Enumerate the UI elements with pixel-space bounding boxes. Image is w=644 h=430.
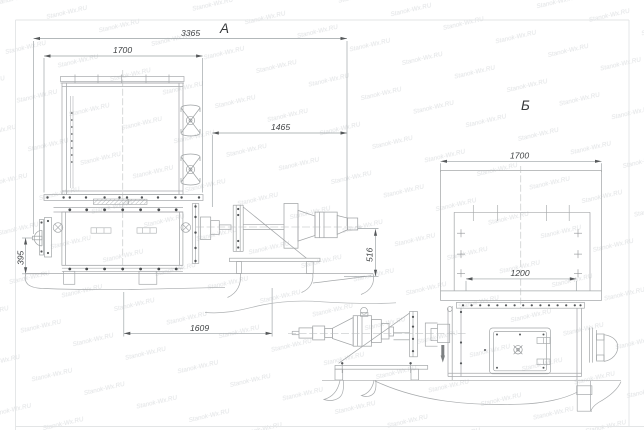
svg-text:1200: 1200 [511, 268, 530, 278]
svg-text:395: 395 [16, 250, 26, 265]
svg-text:1465: 1465 [271, 122, 290, 132]
svg-text:1700: 1700 [113, 45, 132, 55]
svg-text:Б: Б [521, 98, 530, 113]
svg-text:А: А [219, 21, 229, 36]
svg-text:1609: 1609 [190, 323, 209, 333]
svg-text:3365: 3365 [181, 28, 200, 38]
svg-text:516: 516 [365, 247, 375, 262]
svg-text:1700: 1700 [510, 151, 529, 161]
